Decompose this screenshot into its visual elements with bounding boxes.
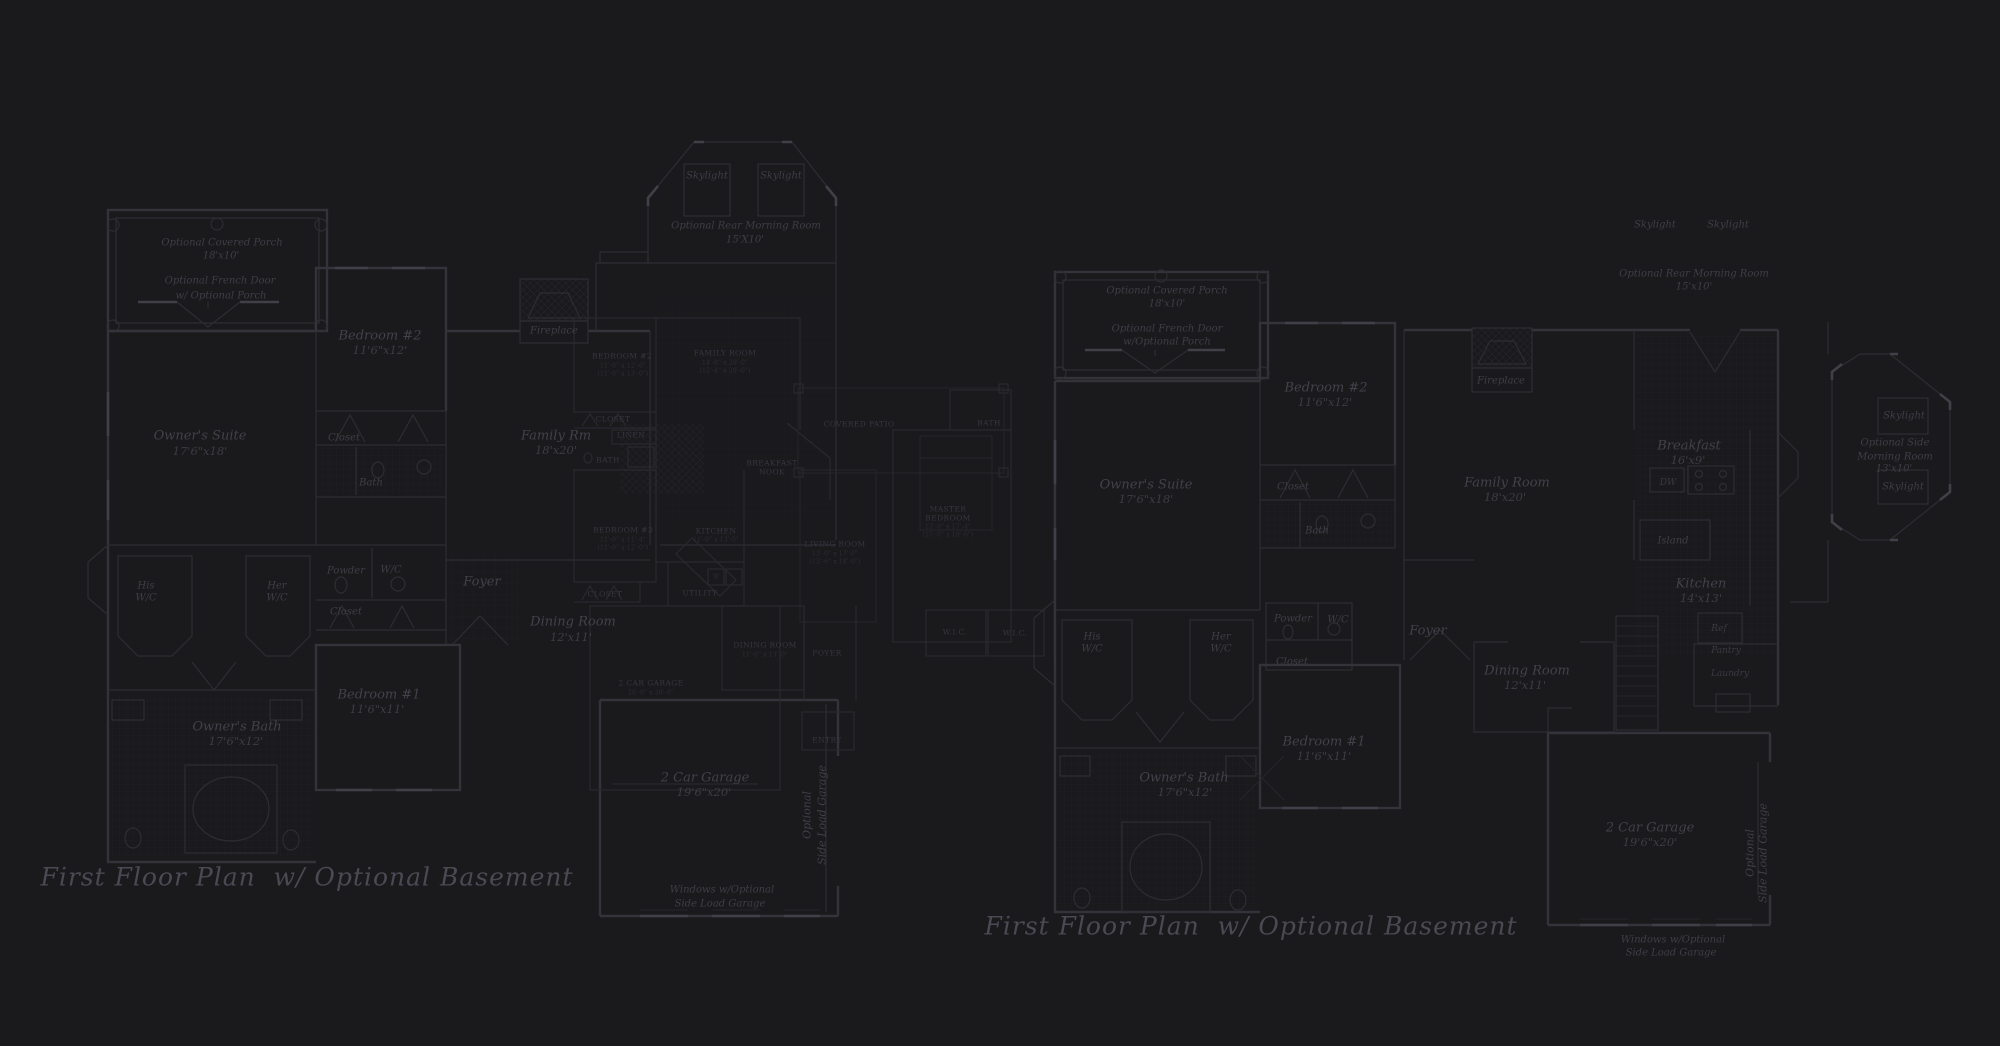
label-right-16-x9: 16'x9': [1671, 453, 1706, 467]
label-middle-family-room: FAMILY ROOM: [694, 349, 756, 358]
label-middle-11-0-x-13-0: 11'-0" x 13'-0": [693, 537, 739, 544]
label-right-skylight: Skylight: [1882, 482, 1924, 493]
label-right-17-6-x12: 17'6"x12': [1158, 785, 1213, 799]
label-left-18-x10: 18'x10': [203, 251, 240, 262]
label-left-skylight: Skylight: [686, 171, 728, 182]
label-left-side-load-garage: Side Load Garage: [816, 765, 829, 865]
label-middle-breakfast: BREAKFAST: [746, 459, 797, 468]
label-left-powder: Powder: [327, 566, 365, 577]
label-middle-2-car-garage: 2 CAR GARAGE: [618, 679, 683, 688]
label-left-18-x20: 18'x20': [535, 443, 577, 457]
label-right-w-optional-porch: w/Optional Porch: [1123, 337, 1211, 348]
label-left-closet: Closet: [328, 433, 360, 444]
label-right-15-x10: 15'x10': [1676, 282, 1713, 293]
label-right-pantry: Pantry: [1711, 646, 1741, 656]
label-right-optional: Optional: [1744, 829, 1757, 877]
label-middle-linen: LINEN: [617, 431, 646, 440]
label-right-w-c: W/C: [1327, 615, 1348, 626]
label-left-w-optional-porch: w/ Optional Porch: [176, 291, 267, 302]
label-left-side-load-garage: Side Load Garage: [675, 899, 766, 910]
label-right-skylight: Skylight: [1883, 411, 1925, 422]
label-right-optional-side: Optional Side: [1861, 438, 1930, 449]
caption-left-first-floor-plan: First Floor Plan w/ Optional Basement: [40, 863, 573, 892]
label-middle-13-0-x-17-0: 13'-0" x 17'-0": [812, 551, 858, 558]
label-middle-living-room: LIVING ROOM: [804, 540, 865, 549]
label-right-optional-covered-porch: Optional Covered Porch: [1106, 286, 1227, 297]
label-left-skylight: Skylight: [760, 171, 802, 182]
label-middle-15-4-x-20-0: (15'-4" x 20'-0"): [699, 368, 750, 375]
caption-right-first-floor-plan: First Floor Plan w/ Optional Basement: [984, 912, 1517, 941]
label-right-windows-w-optional: Windows w/Optional: [1621, 935, 1725, 946]
label-left-foyer: Foyer: [463, 575, 500, 590]
label-right-side-load-garage: Side Load Garage: [1757, 803, 1770, 903]
label-right-fireplace: Fireplace: [1477, 376, 1525, 387]
label-middle-bath: BATH: [977, 419, 1001, 428]
label-right-18-x20: 18'x20': [1484, 490, 1526, 504]
label-middle-w: W: [713, 574, 719, 581]
label-left-19-6-x20: 19'6"x20': [677, 785, 732, 799]
label-middle-bedroom-2: BEDROOM #2: [592, 352, 652, 361]
label-middle-13-0-x-17-4: 13'-0" x 17'-4": [925, 524, 971, 531]
label-middle-bath: BATH: [596, 456, 620, 465]
label-middle-11-0-x-12-0: (11'-0" x 12'-0"): [597, 545, 648, 552]
label-right-owner-s-bath: Owner's Bath: [1139, 771, 1228, 786]
label-middle-dining-room: DINING ROOM: [733, 641, 796, 650]
label-left-optional-rear-morning-room: Optional Rear Morning Room: [671, 221, 821, 232]
label-right-13-x10: 13'x10': [1876, 464, 1913, 475]
label-middle-bedroom-3: BEDROOM #3: [593, 526, 653, 535]
label-middle-14-8-x-20-0: 14'-8" x 20'-0": [702, 360, 748, 367]
label-middle-bedroom: BEDROOM: [925, 514, 970, 523]
label-right-side-load-garage: Side Load Garage: [1626, 948, 1717, 959]
label-middle-13-6-x-18-0: (13'-6" x 18'-0"): [809, 559, 860, 566]
label-right-ref: Ref: [1711, 624, 1726, 634]
label-middle-w-i-c: W.I.C.: [1003, 629, 1027, 638]
label-middle-11-0-x-13-0: 11'-0" x 13'-0": [742, 652, 788, 659]
label-left-11-6-x11: 11'6"x11': [350, 702, 405, 716]
label-left-dining-room: Dining Room: [530, 615, 616, 630]
label-right-12-x11: 12'x11': [1504, 678, 1546, 692]
label-middle-15-0-x-19-0: (15'-0" x 19'-0"): [922, 532, 973, 539]
label-left-optional-french-door: Optional French Door: [165, 276, 276, 287]
label-right-skylight: Skylight: [1707, 220, 1749, 231]
label-left-family-rm: Family Rm: [521, 429, 591, 444]
label-right-bedroom-1: Bedroom #1: [1282, 735, 1365, 750]
label-right-14-x13: 14'x13': [1680, 591, 1722, 605]
label-left-his: His: [137, 581, 154, 592]
label-left-11-6-x12: 11'6"x12': [353, 343, 408, 357]
label-right-w-c: W/C: [1081, 644, 1102, 655]
label-left-optional: Optional: [801, 791, 814, 839]
label-middle-20-0-x-20-8: 20'-0" x 20'-8": [628, 690, 674, 697]
label-middle-entry: ENTRY: [812, 736, 841, 745]
label-right-owner-s-suite: Owner's Suite: [1100, 478, 1193, 493]
floor-plan-canvas: First Floor Plan w/ Optional Basement Fi…: [0, 0, 2000, 1046]
label-middle-kitchen: KITCHEN: [696, 527, 737, 536]
label-left-17-6-x18: 17'6"x18': [173, 444, 228, 458]
label-left-w-c: W/C: [135, 593, 156, 604]
label-right-breakfast: Breakfast: [1657, 439, 1721, 454]
label-right-island: Island: [1657, 536, 1688, 547]
label-right-kitchen: Kitchen: [1676, 577, 1727, 592]
label-middle-w-i-c: W.I.C.: [943, 628, 967, 637]
label-middle-11-0-x-11-4: 11'-0" x 11'-4": [600, 537, 646, 544]
label-middle-foyer: FOYER: [812, 649, 841, 658]
label-right-19-6-x20: 19'6"x20': [1623, 835, 1678, 849]
label-right-w-c: W/C: [1210, 644, 1231, 655]
label-right-dining-room: Dining Room: [1484, 664, 1570, 679]
label-left-bath: Bath: [359, 478, 383, 489]
label-left-closet: Closet: [330, 607, 362, 618]
label-right-her: Her: [1211, 632, 1230, 643]
label-left-bedroom-1: Bedroom #1: [337, 688, 420, 703]
label-right-bath: Bath: [1305, 526, 1329, 537]
label-middle-11-0-x-13-0: (11'-0" x 13'-0"): [597, 371, 648, 378]
label-left-17-6-x12: 17'6"x12': [209, 734, 264, 748]
label-middle-closet: CLOSET: [596, 415, 631, 424]
label-right-foyer: Foyer: [1409, 624, 1446, 639]
label-right-2-car-garage: 2 Car Garage: [1606, 821, 1695, 836]
label-left-windows-w-optional: Windows w/Optional: [670, 885, 774, 896]
label-left-2-car-garage: 2 Car Garage: [661, 771, 750, 786]
labels-layer: First Floor Plan w/ Optional Basement Fi…: [0, 0, 2000, 1046]
label-right-laundry: Laundry: [1711, 669, 1749, 679]
label-right-morning-room: Morning Room: [1857, 452, 1933, 463]
label-right-closet: Closet: [1277, 482, 1309, 493]
label-left-15-x10: 15'X10': [726, 235, 764, 246]
label-left-w-c: W/C: [380, 565, 401, 576]
label-left-owner-s-suite: Owner's Suite: [154, 429, 247, 444]
label-right-18-x10: 18'x10': [1149, 299, 1186, 310]
label-right-bedroom-2: Bedroom #2: [1284, 381, 1367, 396]
label-right-his: His: [1083, 632, 1100, 643]
label-right-skylight: Skylight: [1634, 220, 1676, 231]
label-right-11-6-x12: 11'6"x12': [1298, 395, 1353, 409]
label-right-family-room: Family Room: [1464, 476, 1550, 491]
label-left-bedroom-2: Bedroom #2: [338, 329, 421, 344]
label-left-fireplace: Fireplace: [530, 326, 578, 337]
label-right-optional-rear-morning-room: Optional Rear Morning Room: [1619, 269, 1769, 280]
label-left-optional-covered-porch: Optional Covered Porch: [161, 238, 282, 249]
label-left-12-x11: 12'x11': [550, 630, 592, 644]
label-middle-master: MASTER: [930, 505, 967, 514]
label-right-17-6-x18: 17'6"x18': [1119, 492, 1174, 506]
label-right-powder: Powder: [1274, 614, 1312, 625]
label-right-closet: Closet: [1276, 657, 1308, 668]
label-right-dw: DW: [1660, 478, 1676, 488]
label-left-her: Her: [267, 581, 286, 592]
label-middle-utility: UTILITY: [683, 589, 718, 598]
label-middle-11-0-x-12-6: 11'-0" x 12'-6": [600, 363, 646, 370]
label-left-w-c: W/C: [266, 593, 287, 604]
label-middle-covered-patio: COVERED PATIO: [824, 420, 895, 429]
label-middle-closet: CLOSET: [588, 590, 623, 599]
label-left-owner-s-bath: Owner's Bath: [192, 720, 281, 735]
label-middle-nook: NOOK: [759, 468, 785, 477]
label-right-11-6-x11: 11'6"x11': [1297, 749, 1352, 763]
label-right-optional-french-door: Optional French Door: [1112, 324, 1223, 335]
